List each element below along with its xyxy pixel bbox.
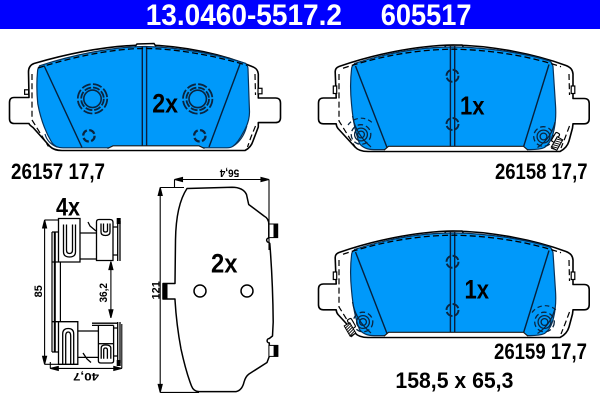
svg-text:26159 17,7: 26159 17,7	[494, 339, 587, 364]
svg-text:26158 17,7: 26158 17,7	[495, 159, 588, 184]
svg-text:121: 121	[150, 281, 162, 299]
svg-text:158,5 x 65,3: 158,5 x 65,3	[395, 368, 513, 393]
svg-text:4x: 4x	[56, 194, 80, 222]
svg-text:56,4: 56,4	[219, 167, 239, 179]
svg-text:2x: 2x	[211, 249, 238, 279]
svg-text:605517: 605517	[381, 0, 472, 32]
svg-text:13.0460-5517.2: 13.0460-5517.2	[146, 0, 342, 32]
svg-text:40,7: 40,7	[73, 370, 99, 382]
svg-text:1x: 1x	[460, 90, 485, 120]
svg-text:36,2: 36,2	[98, 283, 110, 303]
svg-text:85: 85	[33, 285, 45, 297]
svg-text:1x: 1x	[465, 275, 490, 305]
svg-text:2x: 2x	[152, 89, 178, 119]
svg-text:26157 17,7: 26157 17,7	[11, 159, 105, 184]
